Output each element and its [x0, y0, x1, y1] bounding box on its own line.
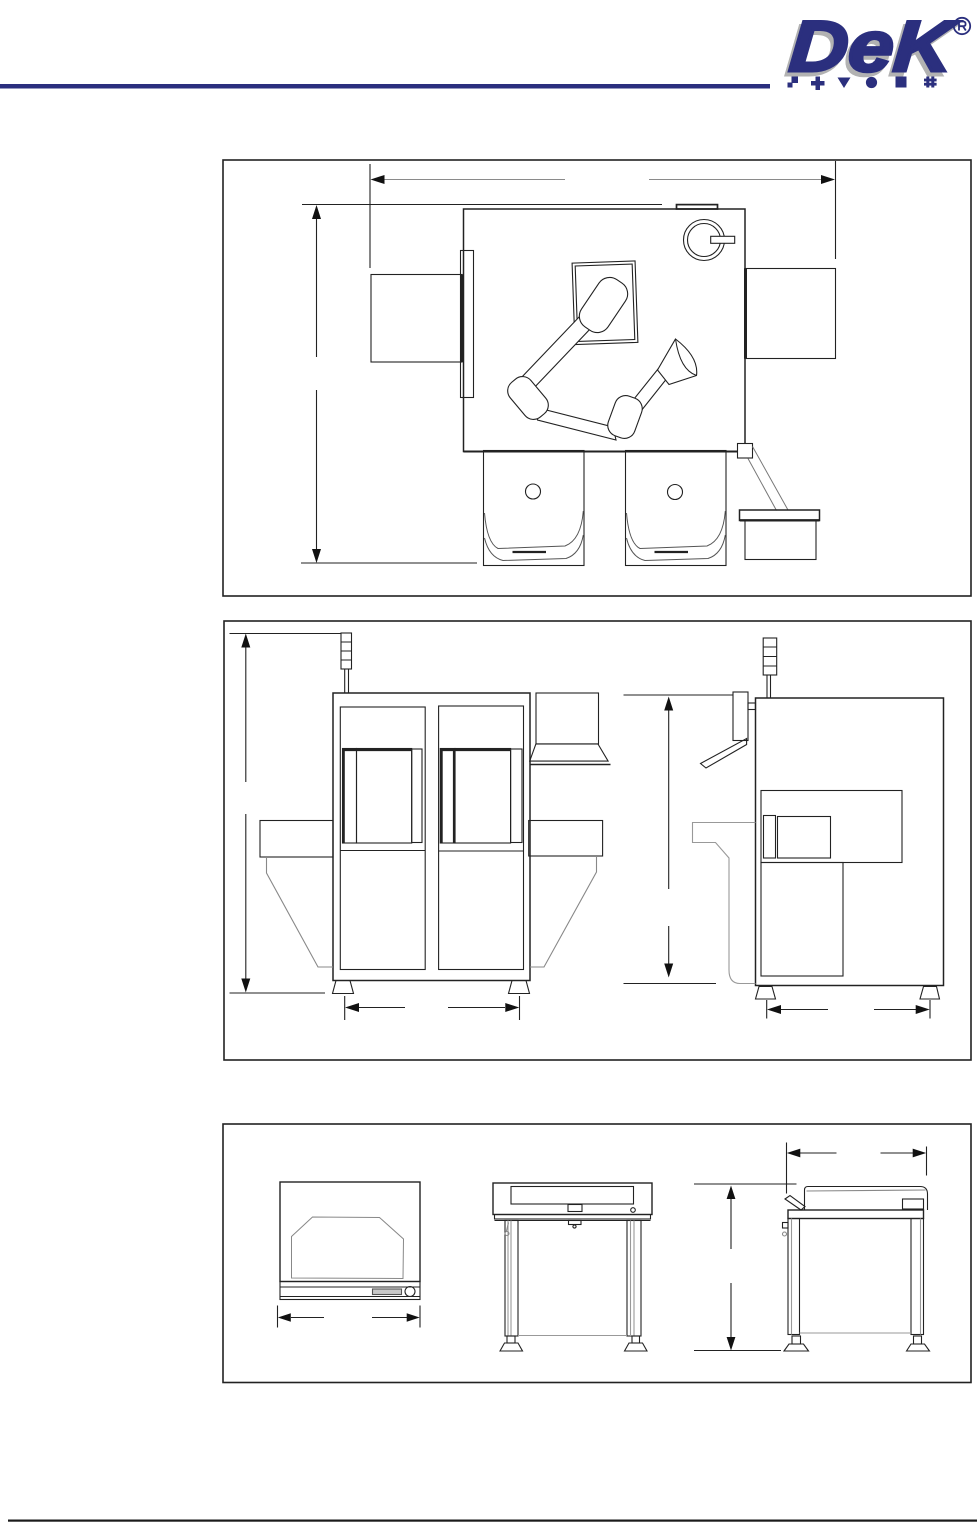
svg-text:DeK: DeK: [787, 7, 961, 87]
